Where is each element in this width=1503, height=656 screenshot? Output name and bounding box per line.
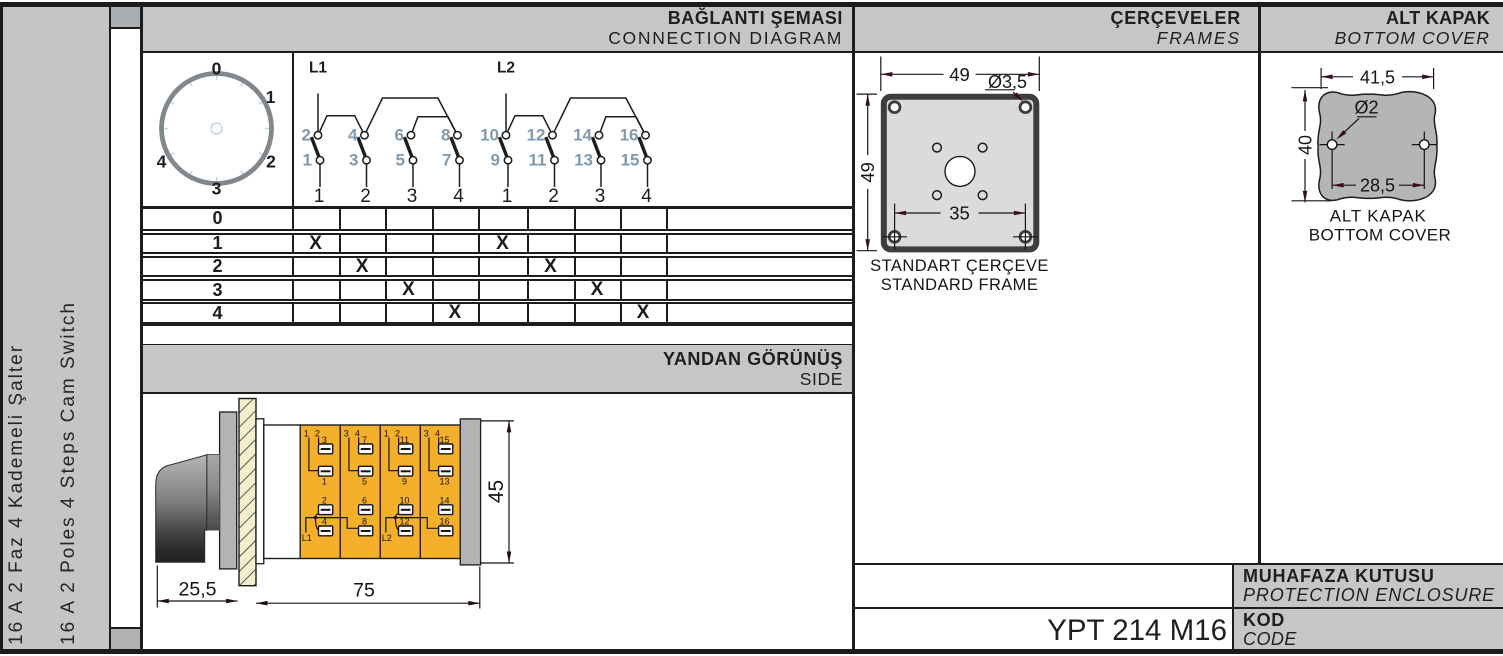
- svg-text:13: 13: [439, 476, 449, 486]
- svg-text:4: 4: [355, 428, 360, 438]
- svg-text:6: 6: [395, 125, 404, 144]
- svg-text:3: 3: [595, 186, 606, 206]
- svg-text:11: 11: [400, 434, 409, 444]
- svg-text:10: 10: [399, 495, 409, 505]
- svg-text:7: 7: [442, 150, 451, 169]
- svg-text:8: 8: [362, 516, 367, 526]
- svg-text:1: 1: [266, 87, 276, 107]
- svg-text:Ø2: Ø2: [1354, 97, 1378, 117]
- svg-text:11: 11: [529, 150, 547, 169]
- svg-text:2: 2: [322, 495, 327, 505]
- svg-text:Ø3,5: Ø3,5: [988, 72, 1027, 92]
- svg-text:BOTTOM COVER: BOTTOM COVER: [1308, 225, 1450, 244]
- svg-text:49: 49: [857, 162, 878, 183]
- svg-text:4: 4: [641, 186, 652, 206]
- svg-text:4: 4: [322, 516, 327, 526]
- svg-text:3: 3: [349, 150, 358, 169]
- svg-text:16: 16: [439, 516, 449, 526]
- svg-text:9: 9: [491, 150, 500, 169]
- svg-text:9: 9: [402, 476, 407, 486]
- svg-text:2: 2: [360, 186, 371, 206]
- svg-text:12: 12: [399, 516, 409, 526]
- svg-text:8: 8: [441, 125, 450, 144]
- svg-text:35: 35: [949, 202, 970, 223]
- svg-text:5: 5: [362, 476, 367, 486]
- svg-text:49: 49: [949, 63, 970, 84]
- svg-text:1: 1: [304, 428, 309, 438]
- svg-text:3: 3: [212, 178, 222, 198]
- svg-text:3: 3: [424, 428, 429, 438]
- svg-text:4: 4: [157, 151, 167, 171]
- svg-text:15: 15: [439, 434, 449, 444]
- svg-text:40: 40: [1295, 134, 1315, 154]
- svg-text:10: 10: [480, 125, 499, 144]
- svg-text:13: 13: [574, 150, 593, 169]
- svg-text:25,5: 25,5: [179, 578, 217, 600]
- svg-text:1: 1: [303, 150, 312, 169]
- svg-text:3: 3: [344, 428, 349, 438]
- svg-text:75: 75: [353, 579, 375, 601]
- svg-text:1: 1: [322, 476, 327, 486]
- svg-text:2: 2: [315, 428, 320, 438]
- svg-text:12: 12: [527, 125, 546, 144]
- svg-text:L1: L1: [309, 59, 327, 76]
- svg-text:4: 4: [453, 186, 464, 206]
- svg-text:2: 2: [266, 151, 276, 171]
- svg-text:L2: L2: [497, 59, 515, 76]
- svg-text:ALT KAPAK: ALT KAPAK: [1329, 206, 1426, 225]
- svg-text:3: 3: [322, 434, 327, 444]
- svg-text:7: 7: [362, 434, 367, 444]
- svg-text:2: 2: [302, 125, 311, 144]
- svg-text:14: 14: [573, 125, 592, 144]
- svg-text:4: 4: [348, 125, 358, 144]
- svg-text:1: 1: [314, 186, 325, 206]
- svg-text:41,5: 41,5: [1359, 67, 1394, 87]
- svg-text:14: 14: [439, 495, 449, 505]
- svg-text:0: 0: [212, 58, 222, 78]
- svg-text:L1: L1: [302, 532, 312, 542]
- svg-text:1: 1: [502, 186, 513, 206]
- svg-text:5: 5: [396, 150, 405, 169]
- svg-text:3: 3: [407, 186, 418, 206]
- svg-text:2: 2: [548, 186, 559, 206]
- svg-text:STANDARD FRAME: STANDARD FRAME: [881, 276, 1038, 294]
- svg-text:45: 45: [485, 479, 508, 502]
- svg-text:28,5: 28,5: [1359, 175, 1394, 195]
- svg-text:STANDART ÇERÇEVE: STANDART ÇERÇEVE: [870, 257, 1049, 275]
- svg-text:L2: L2: [382, 532, 392, 542]
- svg-text:1: 1: [384, 428, 389, 438]
- svg-text:16: 16: [620, 125, 639, 144]
- svg-text:15: 15: [621, 150, 640, 169]
- svg-text:6: 6: [362, 495, 367, 505]
